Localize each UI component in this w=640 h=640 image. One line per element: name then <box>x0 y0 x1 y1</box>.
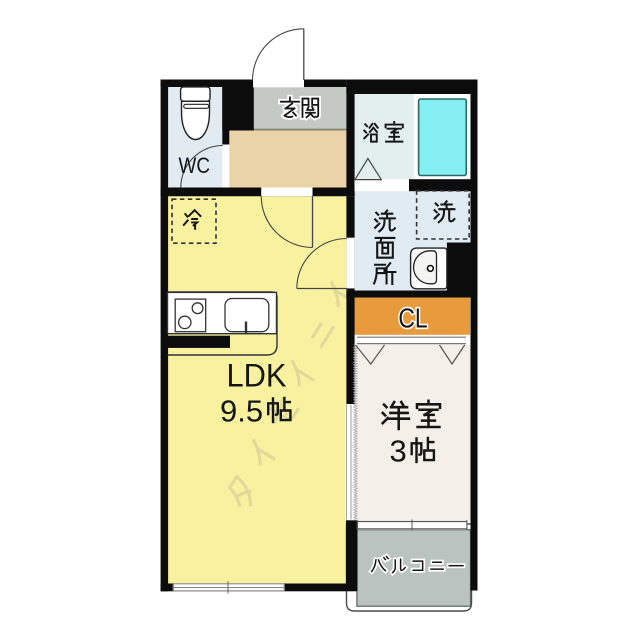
svg-text:LDK: LDK <box>226 357 286 394</box>
svg-text:3: 3 <box>390 434 407 469</box>
svg-text:WC: WC <box>179 154 211 179</box>
svg-text:CL: CL <box>398 303 427 334</box>
svg-text:9.5: 9.5 <box>220 394 263 429</box>
